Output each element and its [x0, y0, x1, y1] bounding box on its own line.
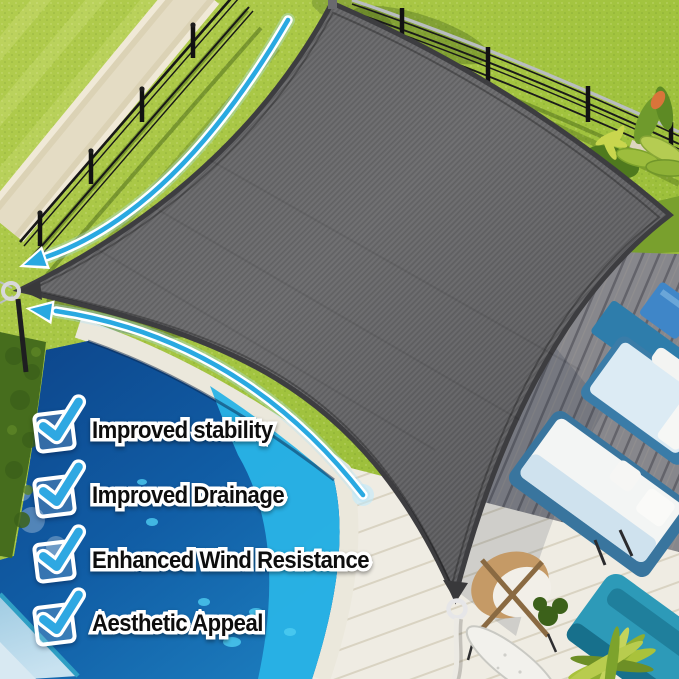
backyard-scene: [0, 0, 679, 679]
tie-rope: [454, 618, 457, 679]
product-image: Improved stability Improved stability Im…: [0, 0, 679, 679]
corner-connector-top: [328, 0, 337, 9]
